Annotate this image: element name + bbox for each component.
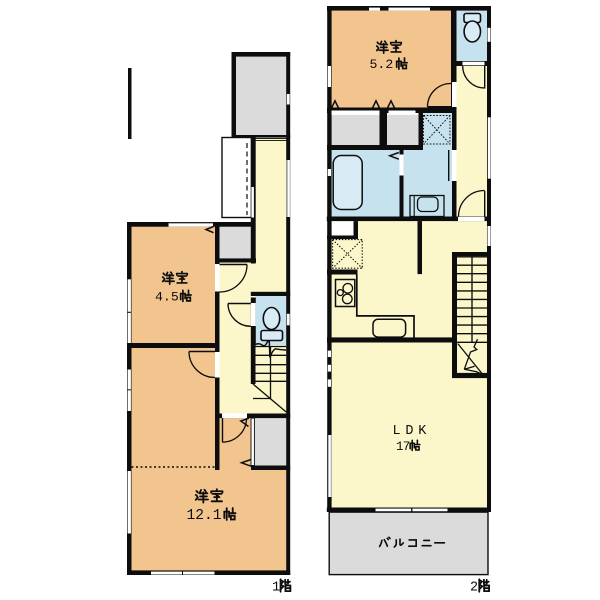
svg-text:2: 2 (470, 581, 478, 596)
svg-text:1: 1 (272, 581, 280, 596)
svg-text:5.2: 5.2 (370, 57, 394, 72)
svg-text:LDK: LDK (393, 424, 432, 439)
svg-text:12.1: 12.1 (187, 508, 222, 524)
svg-text:4.5: 4.5 (155, 289, 179, 304)
svg-text:17: 17 (396, 440, 410, 454)
